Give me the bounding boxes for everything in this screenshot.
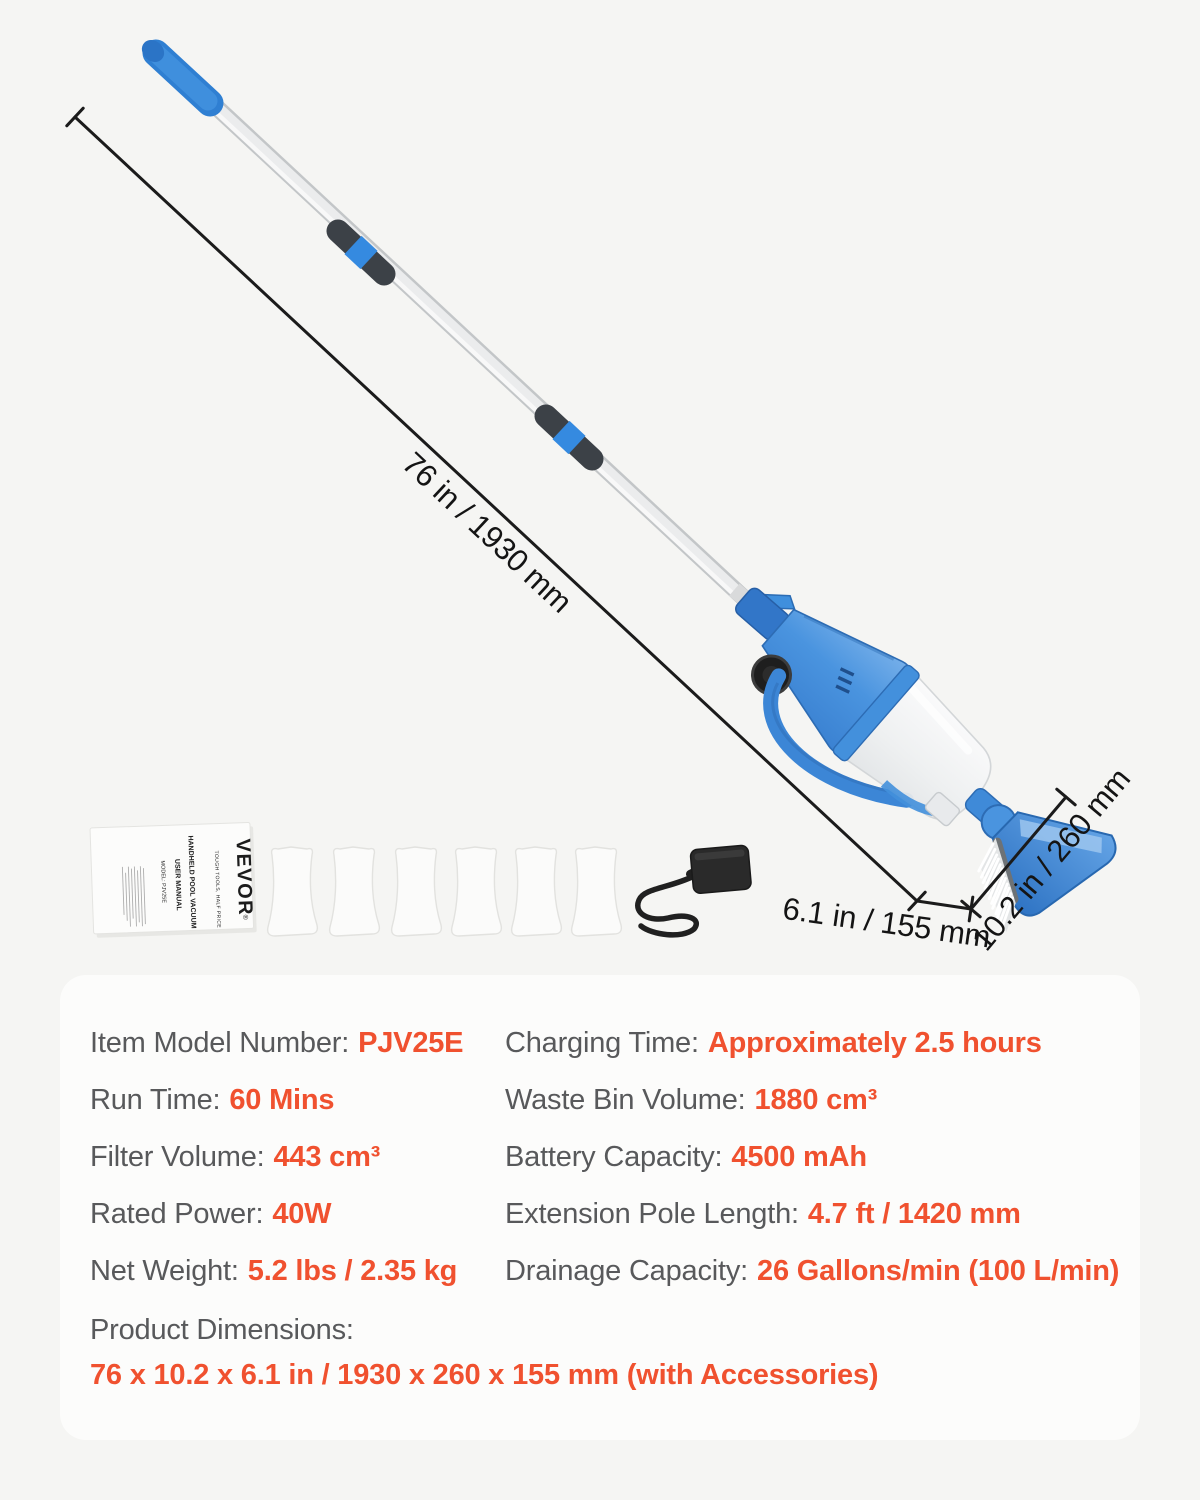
spec-row-drainage-capacity: Drainage Capacity:26 Gallons/min (100 L/… <box>505 1255 1119 1288</box>
spec-row-net-weight: Net Weight:5.2 lbs / 2.35 kg <box>90 1255 505 1288</box>
manual-brand: VEVOR <box>231 838 256 916</box>
manual-page <box>90 822 254 934</box>
user-manual: VEVOR ® TOUGH TOOLS, HALF PRICE HANDHELD… <box>90 822 257 938</box>
product-dimensions-value: 76 x 10.2 x 6.1 in / 1930 x 260 x 155 mm… <box>90 1352 1110 1398</box>
battery-charger <box>638 845 752 935</box>
spec-row-extension-pole-length: Extension Pole Length:4.7 ft / 1420 mm <box>505 1198 1119 1231</box>
pole-grip <box>137 36 210 103</box>
pole-fill <box>168 62 776 628</box>
dimension-line-overall-length <box>67 108 925 910</box>
spec-row-rated-power: Rated Power:40W <box>90 1198 505 1231</box>
spec-row-model: Item Model Number:PJV25E <box>90 1027 505 1060</box>
spec-row-battery-capacity: Battery Capacity:4500 mAh <box>505 1141 1119 1174</box>
spec-grid: Item Model Number:PJV25E Charging Time:A… <box>90 1015 1110 1300</box>
filter-bag <box>392 847 442 936</box>
filter-bag <box>572 847 622 936</box>
product-illustration: 76 in / 1930 mm 6.1 in / 155 mm 10.2 in … <box>0 0 1200 975</box>
overall-length-label: 76 in / 1930 mm <box>396 445 579 619</box>
pole-collar-lower <box>546 416 592 459</box>
filter-bag <box>268 847 318 936</box>
filter-bag <box>512 847 562 936</box>
spec-panel: Item Model Number:PJV25E Charging Time:A… <box>60 975 1140 1440</box>
product-infographic-page: 76 in / 1930 mm 6.1 in / 155 mm 10.2 in … <box>0 0 1200 1500</box>
spec-row-filter-volume: Filter Volume:443 cm³ <box>90 1141 505 1174</box>
telescopic-pole <box>137 36 776 630</box>
spec-row-waste-bin-volume: Waste Bin Volume:1880 cm³ <box>505 1084 1119 1117</box>
filter-bag <box>330 847 380 936</box>
spec-row-charging-time: Charging Time:Approximately 2.5 hours <box>505 1027 1119 1060</box>
filter-bags <box>268 847 622 936</box>
product-dimensions-label: Product Dimensions: <box>90 1308 1110 1352</box>
charger-cable <box>638 876 697 935</box>
charger-adapter <box>690 845 752 894</box>
pole-collar-upper <box>338 231 384 274</box>
spec-row-run-time: Run Time:60 Mins <box>90 1084 505 1117</box>
pole-highlight <box>166 66 772 630</box>
vacuum-unit <box>680 543 1124 955</box>
filter-bag <box>452 847 502 936</box>
